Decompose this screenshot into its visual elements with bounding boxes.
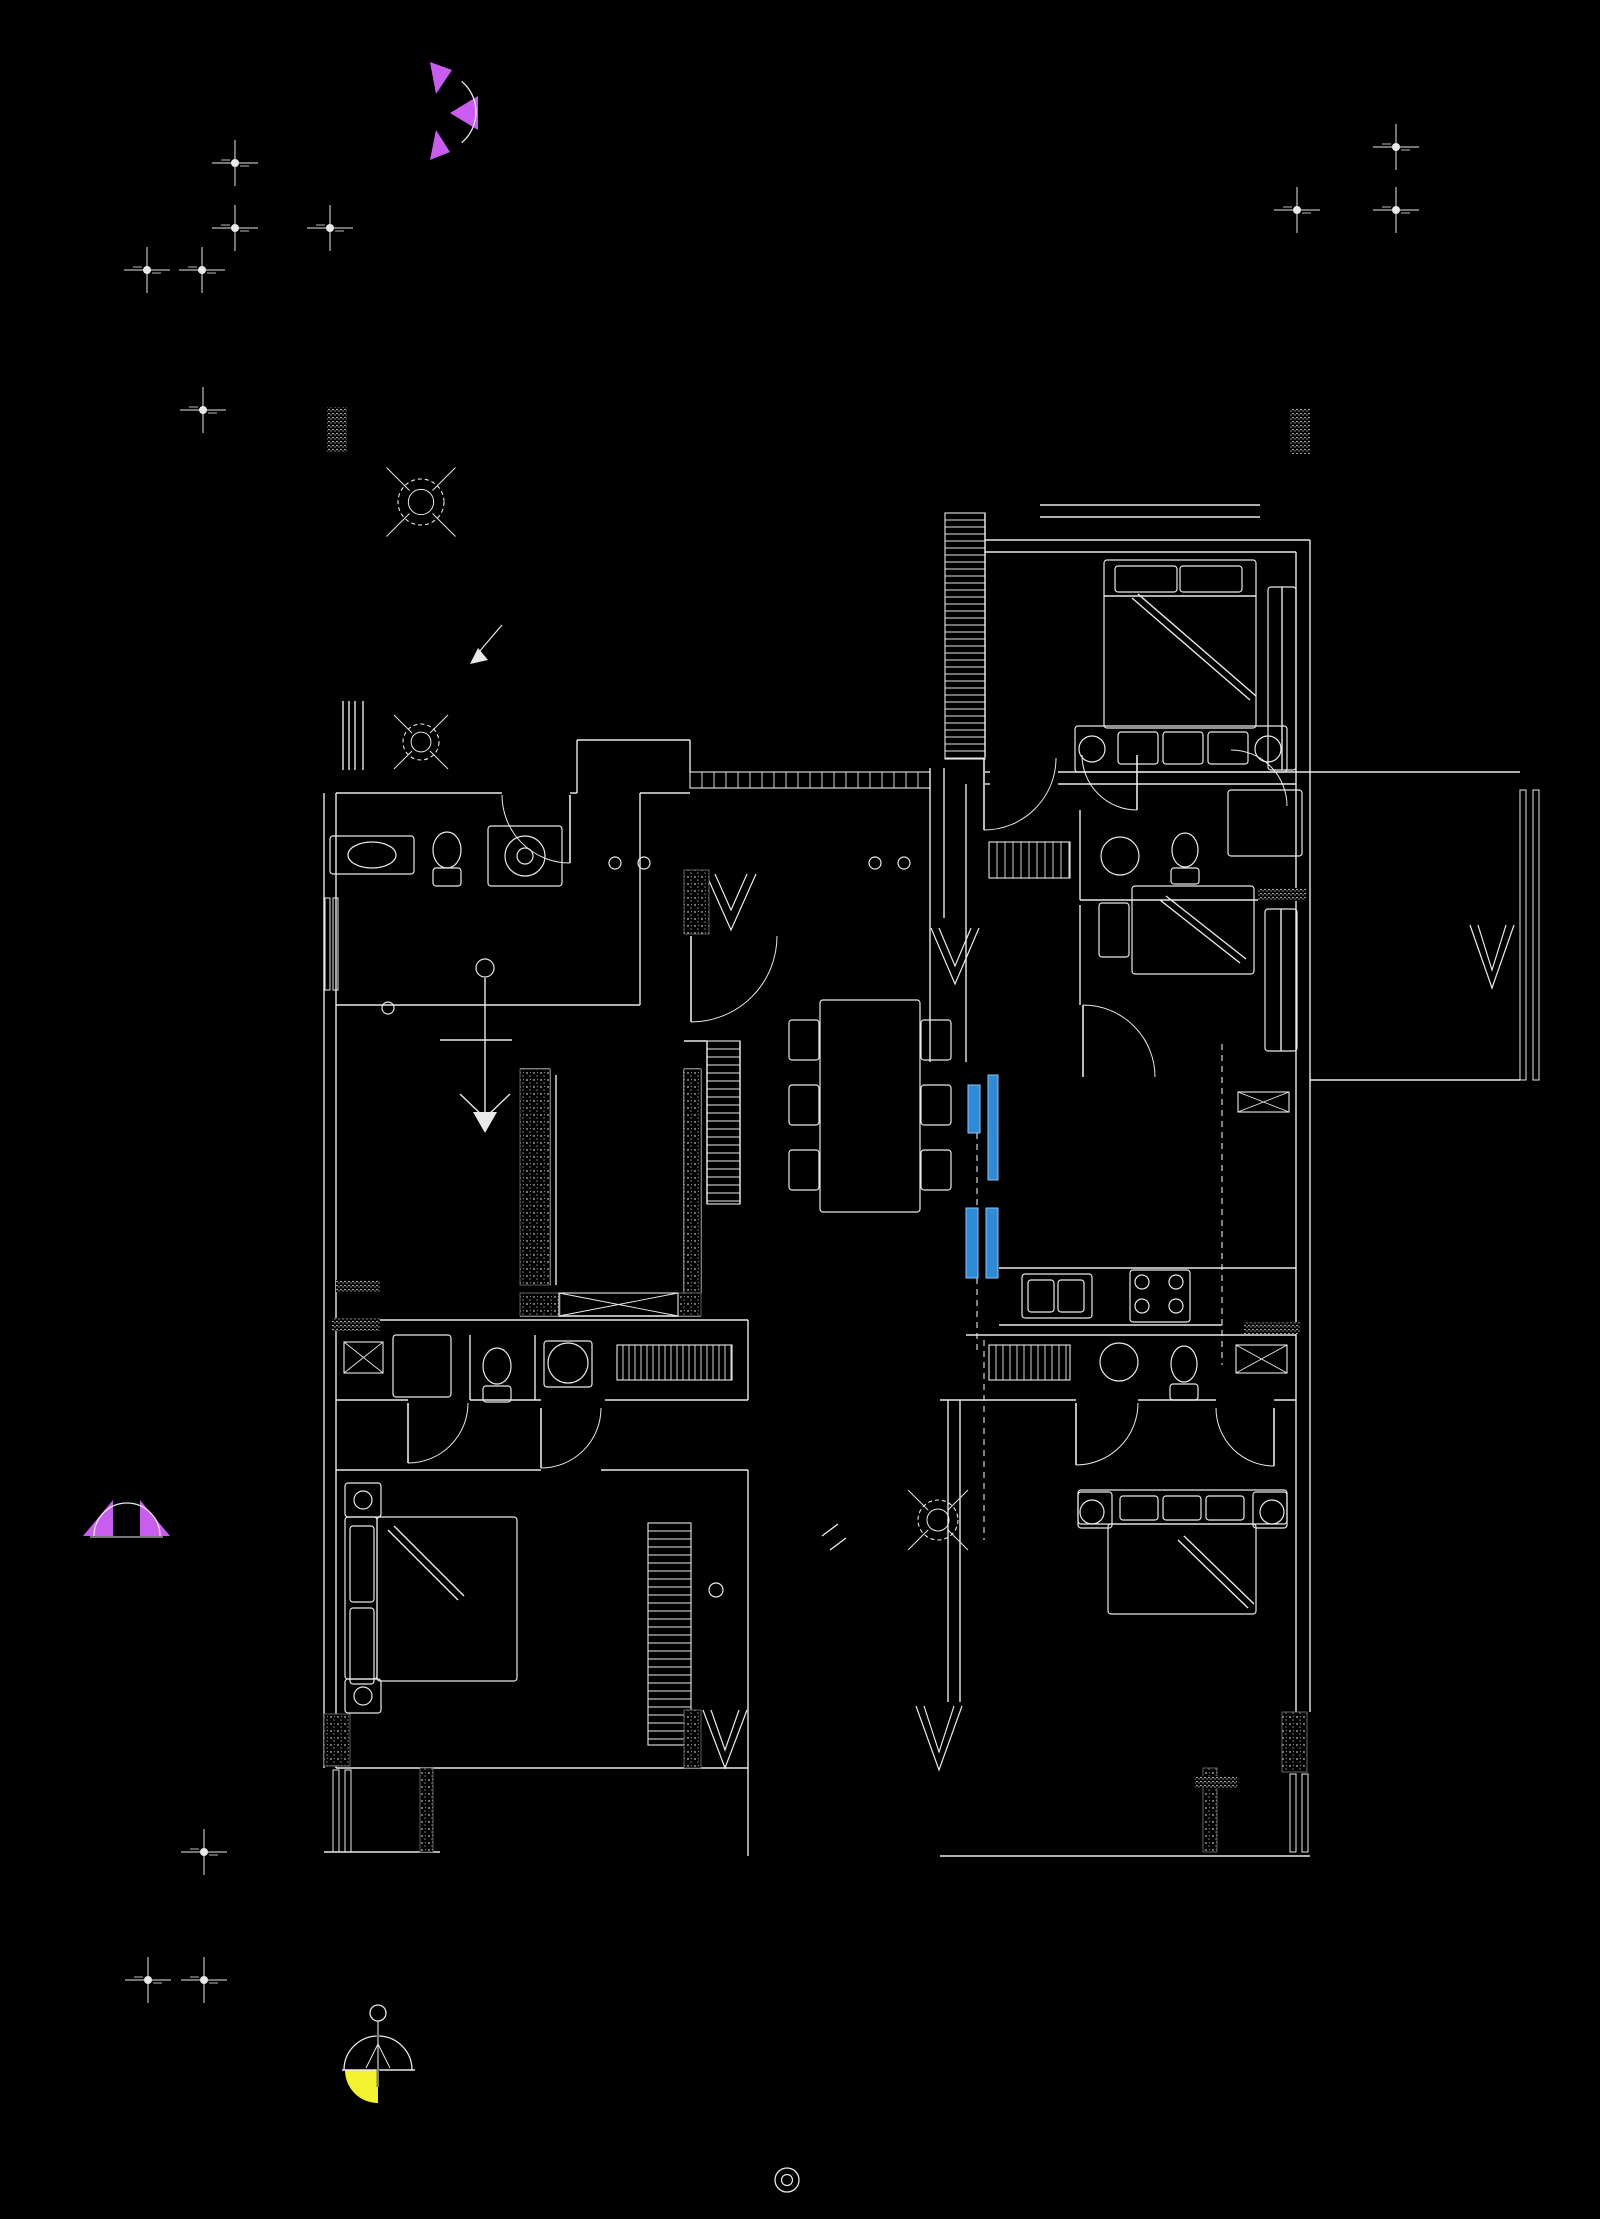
window-strip — [1290, 1774, 1296, 1852]
fixture-rect — [1115, 566, 1177, 592]
concrete-pier — [684, 1069, 701, 1293]
window-v-mark — [1478, 925, 1506, 970]
window-v-mark — [1470, 925, 1514, 988]
sliding-panel-highlight — [966, 1208, 978, 1278]
fixture-circle — [548, 1343, 588, 1383]
diffuser-blade — [433, 514, 456, 537]
diffuser-icon — [408, 489, 433, 514]
fixture-circle — [1135, 1275, 1149, 1289]
polygons-group — [470, 648, 497, 1133]
fixture-rect — [1120, 1496, 1158, 1520]
door-swing-arc — [1082, 755, 1137, 810]
wall-line — [1184, 1536, 1254, 1604]
diffuser-blade — [387, 514, 410, 537]
fixture-rect — [1208, 732, 1248, 764]
concrete-pier — [1282, 1712, 1307, 1772]
illegible-label — [1258, 888, 1306, 901]
fixture-circle — [354, 1491, 372, 1509]
door-swing-arc — [691, 936, 777, 1022]
fixture-rect — [820, 1000, 920, 1212]
cad-floorplan-page — [0, 0, 1600, 2219]
fixture-rect — [1118, 732, 1158, 764]
fans-group — [387, 468, 969, 1551]
window-v-mark — [706, 874, 756, 930]
crosses-group — [124, 124, 1419, 2003]
door-swing-arc — [1216, 1408, 1274, 1466]
polylines-group — [472, 625, 1514, 1770]
fixture-circle — [476, 959, 494, 977]
fixture-circle — [1260, 1500, 1284, 1524]
fixture-rect — [1099, 903, 1129, 957]
window-v-mark — [711, 1710, 739, 1750]
wall-line — [1132, 598, 1250, 700]
window-v-mark — [931, 928, 979, 984]
arrowhead — [470, 648, 488, 664]
door-swing-arc — [984, 758, 1056, 830]
fixture-circle — [1100, 1343, 1138, 1381]
fixture-rect — [1228, 790, 1302, 856]
target-symbol-group — [775, 2168, 799, 2192]
door-swing-arc — [1076, 1403, 1138, 1465]
windows-group — [325, 790, 1539, 1852]
diffuser-blade — [908, 1530, 928, 1550]
window-strip — [1533, 790, 1539, 1080]
fixture-rect — [1028, 1280, 1054, 1312]
fixture-rect — [393, 1335, 451, 1397]
survey-cross-dot — [200, 1976, 208, 1984]
fixture-circle — [709, 1583, 723, 1597]
yellow-symbol-group — [342, 2005, 415, 2103]
legend-leg — [366, 2044, 378, 2068]
survey-cross-dot — [1293, 206, 1301, 214]
fixture-rect — [488, 826, 562, 886]
illegible-label — [1195, 1776, 1237, 1788]
fixture-circle — [1079, 736, 1105, 762]
door-swing-arc — [1083, 1005, 1155, 1077]
fixture-ellipse — [1172, 833, 1198, 867]
fixture-rect — [350, 1608, 374, 1684]
window-strip — [325, 898, 330, 990]
fixture-rect — [1078, 1492, 1112, 1528]
purple-triangle — [430, 130, 450, 160]
illegible-label — [327, 407, 347, 453]
fixture-rect — [921, 1150, 951, 1190]
wall-line — [1160, 900, 1240, 963]
purple-triangle — [430, 62, 452, 94]
survey-cross-dot — [200, 1848, 208, 1856]
diffuser-blade — [948, 1490, 968, 1510]
target-inner-circle — [782, 2175, 793, 2186]
fixture-ellipse — [433, 832, 461, 868]
fixture-rect — [789, 1085, 819, 1125]
diffuser-blade — [387, 468, 410, 491]
window-v-mark — [703, 1710, 747, 1768]
xbox-group — [344, 1092, 1289, 1373]
fixture-rect — [1078, 1490, 1287, 1524]
diffuser-icon — [927, 1509, 949, 1531]
fixture-rect — [921, 1020, 951, 1060]
concrete-pier — [520, 1293, 560, 1316]
concrete-pier — [678, 1293, 701, 1316]
concrete-pier — [684, 1710, 701, 1768]
survey-cross-dot — [144, 1976, 152, 1984]
legend-head-circle — [370, 2005, 386, 2021]
fixture-rect — [789, 1020, 819, 1060]
sliding-panel-highlight — [986, 1208, 998, 1278]
legend-leg — [378, 2044, 390, 2068]
illegible-label — [332, 1318, 380, 1331]
diffuser-icon — [411, 732, 431, 752]
fixture-rect — [377, 1517, 517, 1681]
wall-line — [830, 1538, 846, 1550]
sliding-panel-highlight — [988, 1075, 998, 1180]
fixture-circle — [1080, 1500, 1104, 1524]
fixture-rect — [1171, 868, 1199, 884]
wall-line — [388, 1530, 458, 1600]
hatch-frame — [617, 1345, 732, 1380]
fixture-ellipse — [1171, 1346, 1197, 1382]
door-swing-arc — [502, 795, 570, 863]
diffuser-blade — [433, 468, 456, 491]
purple-marks-group — [83, 62, 478, 1537]
diffuser-blade — [430, 751, 448, 769]
diffuser-blade — [394, 715, 412, 733]
arrowhead — [473, 1112, 497, 1133]
diffuser-blade — [430, 715, 448, 733]
window-v-mark — [924, 1706, 954, 1752]
illegible-label — [336, 1280, 380, 1292]
door-swing-arc — [408, 1403, 468, 1463]
fixture-rect — [921, 1085, 951, 1125]
fixture-circle — [354, 1687, 372, 1705]
purple-triangle — [83, 1500, 113, 1536]
concrete-pier — [684, 870, 709, 934]
fixture-circle — [382, 1002, 394, 1014]
fixture-rect — [1058, 1280, 1084, 1312]
dashed-lines-group — [977, 1044, 1222, 1540]
survey-cross-dot — [143, 266, 151, 274]
diffuser-blade — [948, 1530, 968, 1550]
illegible-label — [1244, 1322, 1300, 1334]
hatch-frame — [989, 842, 1070, 878]
fixture-circle — [869, 857, 881, 869]
fixture-circle — [609, 857, 621, 869]
fixture-circle — [1135, 1299, 1149, 1313]
fixture-rect — [1163, 732, 1203, 764]
fixture-circle — [898, 857, 910, 869]
survey-cross-dot — [231, 159, 239, 167]
fixture-ellipse — [348, 842, 396, 868]
hatch-frame — [945, 513, 985, 759]
fixture-rect — [433, 868, 461, 886]
fixture-circle — [1169, 1299, 1183, 1313]
survey-cross-dot — [231, 224, 239, 232]
survey-cross-dot — [198, 266, 206, 274]
yellow-quarter-wedge — [345, 2070, 378, 2103]
fixture-rect — [1132, 886, 1254, 974]
fixture-rect — [1108, 1524, 1256, 1614]
window-strip — [333, 1770, 339, 1852]
walls-group — [324, 505, 1520, 1856]
window-v-mark — [916, 1706, 962, 1770]
fixture-rect — [350, 1526, 374, 1602]
window-strip — [1520, 790, 1526, 1080]
sliding-panel-highlight — [968, 1085, 980, 1133]
survey-cross-dot — [326, 224, 334, 232]
wall-line — [1166, 896, 1246, 959]
fixture-circle — [1169, 1275, 1183, 1289]
concrete-pier — [420, 1768, 433, 1852]
window-strip — [1302, 1774, 1308, 1852]
fixture-rect — [789, 1150, 819, 1190]
concrete-pier — [324, 1714, 350, 1766]
circles-group — [354, 736, 1284, 1705]
stipple-group — [324, 870, 1307, 1852]
window-strip — [345, 1770, 351, 1852]
wall-line — [1178, 1540, 1248, 1608]
hatch-frame — [989, 1345, 1070, 1380]
blue-panels-group — [966, 1075, 998, 1278]
wall-line — [822, 1524, 838, 1536]
door-swing-arc — [541, 1408, 601, 1468]
fixture-rect — [1170, 1384, 1198, 1400]
concrete-pier — [520, 1069, 550, 1285]
fixture-rect — [1206, 1496, 1244, 1520]
diffuser-blade — [908, 1490, 928, 1510]
diffuser-blade — [394, 751, 412, 769]
fixture-rect — [544, 1341, 592, 1387]
fixture-ellipse — [483, 1348, 511, 1384]
fixture-rect — [1163, 1496, 1201, 1520]
floor-plan — [0, 0, 1600, 2219]
illegible-label — [1290, 408, 1310, 454]
survey-cross-dot — [199, 406, 207, 414]
survey-cross-dot — [1392, 143, 1400, 151]
fixture-circle — [1101, 837, 1139, 875]
fixture-rect — [1180, 566, 1242, 592]
wall-line — [1138, 594, 1256, 696]
survey-cross-dot — [1392, 206, 1400, 214]
fixture-rect — [1253, 1492, 1287, 1528]
target-outer-circle — [775, 2168, 799, 2192]
wall-line — [394, 1526, 464, 1596]
fixture-rects-group — [330, 560, 1302, 1713]
fixture-rect — [345, 1483, 381, 1517]
